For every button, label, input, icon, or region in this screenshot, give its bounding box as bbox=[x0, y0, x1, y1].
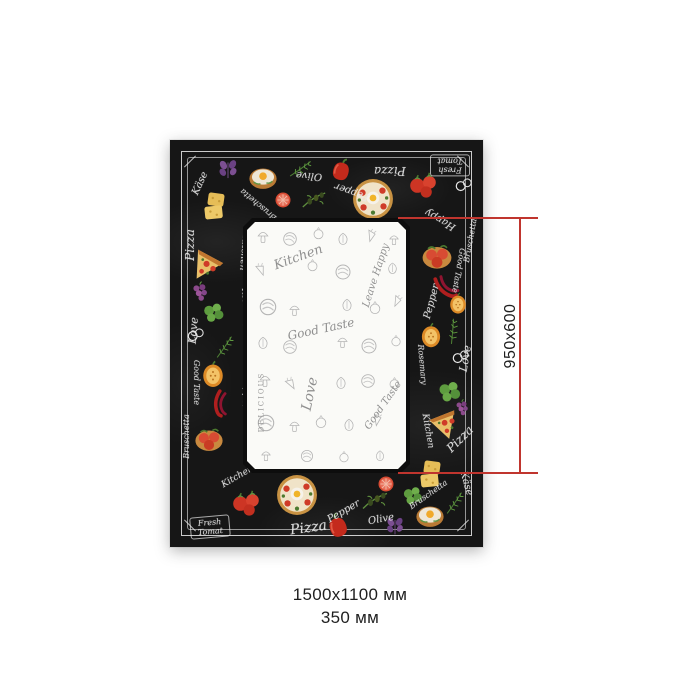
chalk-label: Love bbox=[186, 317, 201, 345]
pepper-half-icon bbox=[198, 360, 228, 390]
inner-dimension-label: 950x600 bbox=[502, 304, 520, 369]
tomato-toast-icon bbox=[192, 422, 226, 456]
chalk-label: Fresh Tomat bbox=[430, 154, 470, 176]
chili-icon bbox=[200, 384, 239, 423]
chalk-label: Fresh Tomat bbox=[189, 514, 231, 540]
cheese-icon bbox=[200, 190, 232, 222]
tomato-slice-icon bbox=[273, 190, 293, 210]
greens-icon bbox=[200, 298, 228, 326]
chalk-label: Pizza bbox=[183, 229, 197, 261]
chalk-label: Happy bbox=[423, 206, 457, 232]
frame-corner-decoration bbox=[184, 155, 196, 167]
chalk-label: Good Taste bbox=[192, 360, 201, 405]
center-panel-paper: Kitchen Leave Happy Good Taste Love DELI… bbox=[247, 222, 406, 469]
basil-icon bbox=[215, 156, 241, 182]
frame-corner-decoration bbox=[457, 519, 469, 531]
overall-size-text: 1500х1100 мм bbox=[0, 583, 700, 606]
tomato-slice-icon bbox=[376, 474, 396, 494]
olive-branch-icon bbox=[300, 186, 328, 214]
towel-product-photo: Käse Bruschetta Olive Pepper Pizza Fresh… bbox=[170, 140, 483, 547]
pretzel-rings-icon bbox=[453, 174, 475, 196]
chalk-label: Olive bbox=[296, 169, 323, 182]
tomato-toast-icon bbox=[419, 238, 455, 274]
chalk-label: Pizza bbox=[374, 164, 406, 178]
chalk-label: Bruschetta bbox=[182, 414, 191, 459]
chalk-label: Rosemary bbox=[416, 344, 428, 385]
size-caption: 1500х1100 мм 350 мм bbox=[0, 583, 700, 629]
chalk-label: Pizza bbox=[289, 518, 328, 539]
panel-word: DELICIOUS bbox=[257, 372, 265, 433]
dimension-line-top bbox=[398, 217, 538, 219]
egg-toast-icon bbox=[246, 160, 280, 194]
tomato-cluster-icon bbox=[230, 486, 262, 518]
pepper-half-icon bbox=[446, 292, 470, 316]
dimension-line-bottom bbox=[398, 472, 538, 474]
pizza-icon bbox=[276, 474, 318, 516]
center-panel: Kitchen Leave Happy Good Taste Love DELI… bbox=[243, 218, 410, 473]
rosemary-icon bbox=[212, 334, 238, 360]
hem-size-text: 350 мм bbox=[0, 606, 700, 629]
